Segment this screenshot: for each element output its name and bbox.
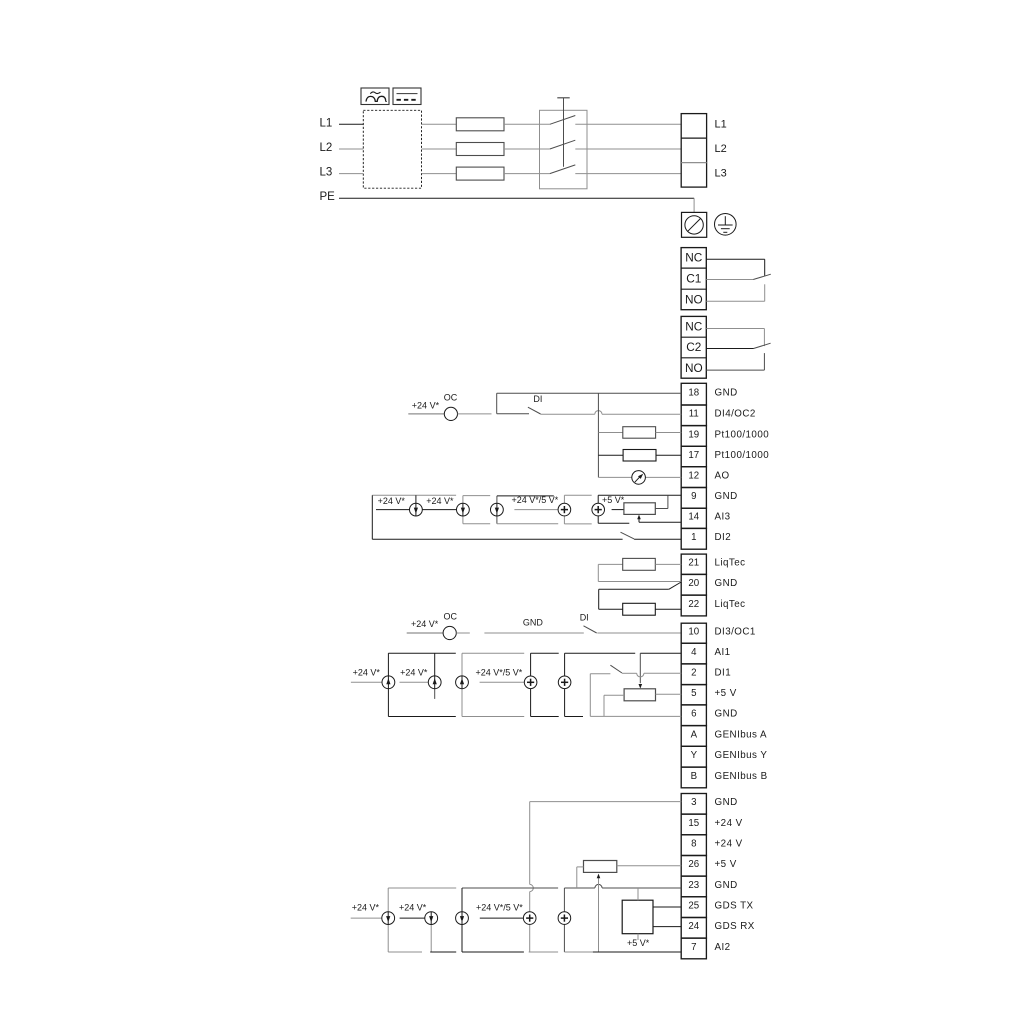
svg-text:L3: L3 [320, 167, 333, 179]
svg-text:19: 19 [688, 429, 699, 440]
svg-text:GENIbus B: GENIbus B [715, 771, 768, 782]
svg-text:+24 V*: +24 V* [426, 496, 454, 506]
svg-text:L2: L2 [320, 142, 333, 154]
svg-text:GND: GND [523, 618, 544, 628]
svg-text:+24 V*: +24 V* [352, 903, 380, 913]
svg-text:20: 20 [688, 578, 699, 589]
svg-text:+24 V*: +24 V* [411, 619, 439, 629]
svg-text:Pt100/1000: Pt100/1000 [715, 450, 770, 461]
svg-text:C1: C1 [686, 272, 701, 286]
svg-text:GDS TX: GDS TX [715, 900, 754, 911]
svg-text:NO: NO [685, 361, 703, 375]
svg-text:+5 V*: +5 V* [627, 938, 650, 948]
svg-text:17: 17 [688, 450, 699, 461]
svg-text:B: B [691, 771, 697, 782]
svg-text:AI3: AI3 [715, 512, 731, 523]
svg-text:+24 V*: +24 V* [378, 496, 406, 506]
svg-text:+24 V*: +24 V* [412, 401, 440, 411]
svg-text:LiqTec: LiqTec [715, 558, 746, 569]
svg-text:9: 9 [691, 491, 696, 502]
svg-text:NC: NC [685, 320, 703, 334]
svg-text:+5 V*: +5 V* [602, 495, 625, 505]
svg-text:OC: OC [444, 611, 458, 621]
svg-text:GND: GND [715, 709, 738, 720]
svg-text:GDS RX: GDS RX [715, 921, 755, 932]
svg-text:+24 V*: +24 V* [399, 903, 427, 913]
svg-text:22: 22 [688, 599, 699, 610]
svg-text:+24 V*/5 V*: +24 V*/5 V* [476, 668, 523, 678]
svg-text:GENIbus A: GENIbus A [715, 729, 768, 740]
svg-text:+24 V*/5 V*: +24 V*/5 V* [476, 902, 523, 912]
svg-text:C2: C2 [686, 340, 701, 354]
svg-text:GND: GND [715, 797, 738, 808]
svg-text:1: 1 [691, 532, 696, 543]
svg-text:GND: GND [715, 491, 738, 502]
svg-text:A: A [691, 729, 698, 740]
svg-text:GENIbus Y: GENIbus Y [715, 750, 768, 761]
svg-text:L1: L1 [320, 117, 333, 129]
svg-text:8: 8 [691, 838, 696, 849]
svg-text:+24 V: +24 V [715, 818, 743, 829]
svg-text:4: 4 [691, 647, 697, 658]
svg-text:12: 12 [688, 470, 699, 481]
svg-text:DI1: DI1 [715, 668, 732, 679]
svg-text:+24 V: +24 V [715, 838, 743, 849]
svg-text:GND: GND [715, 578, 738, 589]
svg-text:5: 5 [691, 688, 696, 699]
svg-text:26: 26 [688, 859, 699, 870]
svg-text:L1: L1 [715, 118, 727, 130]
svg-text:Pt100/1000: Pt100/1000 [715, 429, 770, 440]
svg-text:GND: GND [715, 387, 738, 398]
svg-text:+5 V: +5 V [715, 688, 737, 699]
svg-text:18: 18 [688, 387, 699, 398]
svg-text:11: 11 [689, 409, 699, 420]
svg-text:3: 3 [691, 797, 696, 808]
svg-text:15: 15 [688, 818, 699, 829]
svg-text:DI2: DI2 [715, 532, 732, 543]
svg-text:L3: L3 [715, 168, 727, 180]
svg-text:NC: NC [685, 251, 703, 265]
svg-text:7: 7 [691, 942, 696, 953]
svg-text:DI: DI [533, 394, 542, 404]
svg-text:AI2: AI2 [715, 942, 731, 953]
svg-text:23: 23 [688, 880, 699, 891]
svg-text:PE: PE [320, 191, 336, 203]
svg-text:GND: GND [715, 880, 738, 891]
svg-text:+24 V*: +24 V* [353, 668, 381, 678]
svg-text:OC: OC [444, 392, 458, 402]
svg-text:25: 25 [688, 900, 699, 911]
svg-text:2: 2 [691, 668, 696, 679]
svg-text:LiqTec: LiqTec [715, 599, 746, 610]
svg-text:+24 V*: +24 V* [400, 668, 428, 678]
svg-text:+24 V*/5 V*: +24 V*/5 V* [512, 495, 559, 505]
svg-text:10: 10 [688, 627, 699, 638]
svg-text:21: 21 [688, 558, 699, 569]
svg-text:6: 6 [691, 709, 696, 720]
svg-text:DI: DI [580, 612, 589, 622]
svg-text:AO: AO [715, 470, 730, 481]
svg-text:L2: L2 [715, 143, 727, 155]
svg-text:DI4/OC2: DI4/OC2 [715, 409, 756, 420]
svg-text:AI1: AI1 [715, 647, 731, 658]
svg-text:NO: NO [685, 292, 703, 306]
svg-text:DI3/OC1: DI3/OC1 [715, 627, 756, 638]
svg-text:Y: Y [691, 750, 698, 761]
svg-text:14: 14 [688, 512, 699, 523]
svg-text:24: 24 [688, 921, 699, 932]
svg-text:+5 V: +5 V [715, 859, 737, 870]
